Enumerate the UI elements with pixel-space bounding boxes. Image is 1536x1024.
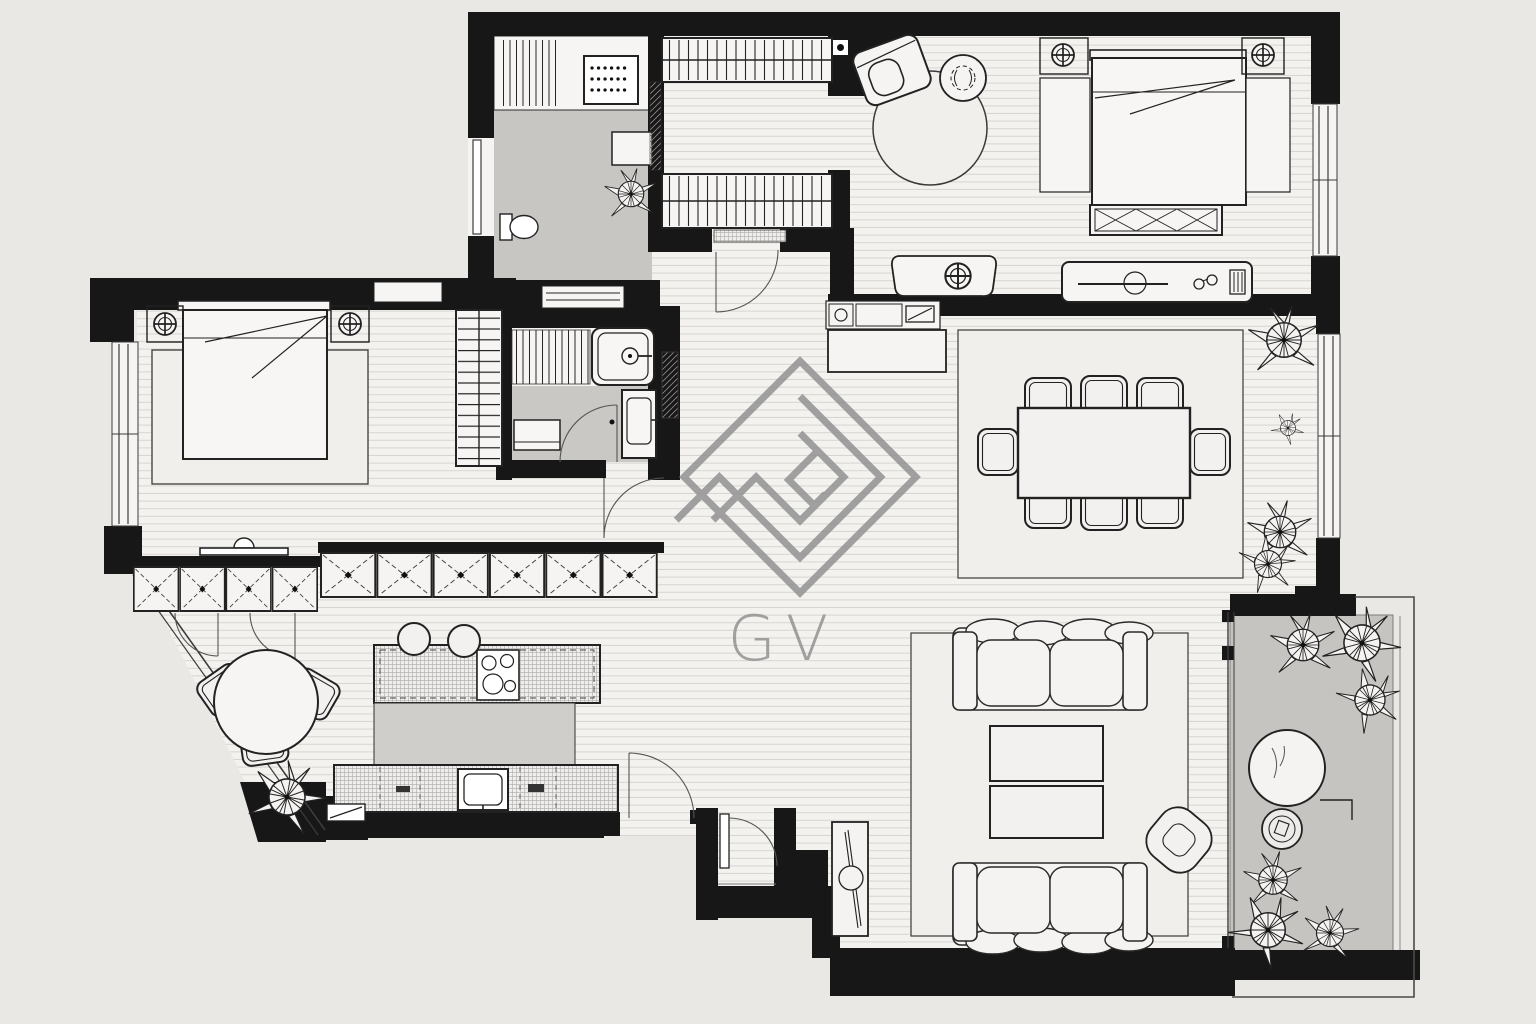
watermark-monogram: GV <box>728 602 838 675</box>
entry-console <box>832 822 868 936</box>
floor-plan-page: GV <box>0 0 1536 1024</box>
dining-window <box>1318 334 1340 538</box>
bedside-lamp-icon <box>154 313 176 335</box>
floor-plan-canvas: GV <box>0 0 1536 1024</box>
headboard <box>178 301 330 310</box>
shower-floor <box>512 330 590 384</box>
sofa-bottom <box>953 863 1153 954</box>
cooktop <box>477 650 519 700</box>
dining-table <box>1018 408 1190 498</box>
dresser <box>1062 262 1252 302</box>
bedside-runner-right <box>1246 78 1290 192</box>
bedside-lamp-icon <box>1052 44 1074 66</box>
toilet <box>500 214 538 240</box>
bedroom-window <box>1313 104 1337 256</box>
shelving-stripes <box>498 40 560 106</box>
master-bedroom-window <box>112 342 138 526</box>
master-bed <box>183 310 327 459</box>
side-table <box>940 55 986 101</box>
hall-wall-niche <box>826 301 940 329</box>
bed-bench <box>1090 205 1222 235</box>
sofa-top <box>953 619 1153 710</box>
console-organic <box>892 256 996 296</box>
duct-hatch <box>662 352 678 418</box>
breakfast-table <box>214 650 318 754</box>
radiator <box>456 310 502 466</box>
wardrobe-bottom <box>662 174 832 228</box>
washing-machine <box>584 56 638 104</box>
laundry-wall-shelf-niche <box>542 286 624 308</box>
bath-bench <box>514 420 560 450</box>
bedroom-wall-niche <box>374 282 442 302</box>
laundry-door-opening <box>468 138 494 236</box>
coffee-table <box>990 726 1103 781</box>
bedside-lamp-icon <box>1252 44 1274 66</box>
bar-stool <box>398 623 430 655</box>
divider-hatch <box>650 82 661 170</box>
vanity-sink <box>622 390 658 458</box>
bar-stool <box>448 625 480 657</box>
kitchen-doormat <box>327 804 365 821</box>
terrace-tray-table <box>1262 809 1302 849</box>
coffee-table <box>990 786 1103 838</box>
floor-drain <box>610 420 615 425</box>
bedside-lamp-icon <box>339 313 361 335</box>
bathtub <box>592 328 654 385</box>
laundry-side-table <box>612 132 652 165</box>
wardrobe-sensor-dot <box>837 44 844 51</box>
bed <box>1090 50 1246 205</box>
hall-low-cabinet <box>828 330 946 372</box>
kitchen-island <box>374 623 600 765</box>
terrace-lounge-table <box>1249 730 1325 806</box>
sink-counter <box>334 765 618 812</box>
bedside-runner-left <box>1040 78 1090 192</box>
wardrobe-top <box>662 38 832 82</box>
dressing-mat <box>714 230 786 242</box>
